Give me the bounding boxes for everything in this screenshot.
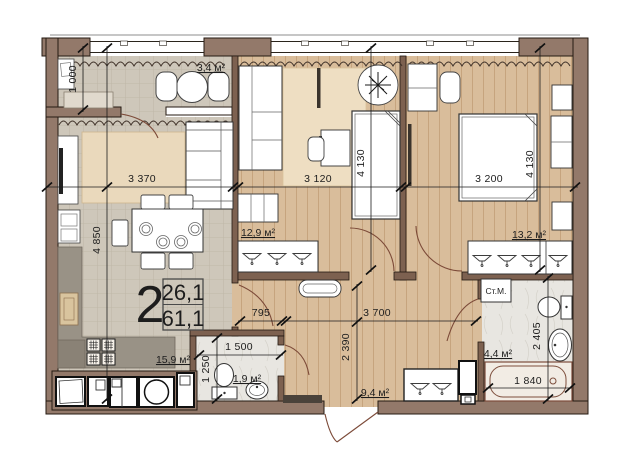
bedroom1-area-label: 12,9 м²: [241, 227, 276, 239]
dim-living-depth: 4 850: [91, 226, 103, 254]
pier-top-center: [204, 38, 271, 56]
wall-right: [573, 38, 588, 414]
bath-toilet-bowl: [538, 297, 560, 317]
hall-small-unit: [461, 395, 475, 404]
dim-wc-width: 1 500: [225, 341, 253, 353]
balcony-chair-right: [208, 72, 229, 101]
bathroom-area-label: 4,4 м²: [484, 348, 513, 360]
rooms-count: 2: [136, 276, 165, 334]
hallway-area-label: 9,4 м²: [361, 387, 390, 399]
kitchen-living-area-label: 15,9 м²: [156, 354, 191, 366]
dim-wc-depth: 1 250: [200, 355, 212, 383]
entrance-door-arc: [325, 414, 337, 442]
desk: [321, 130, 350, 166]
apartment-info-box: 2 26,1 61,1: [136, 276, 205, 334]
floor-mirror-bedroom1: [317, 68, 321, 108]
dim-bedroom1-depth: 4 130: [355, 149, 367, 177]
living-area-value: 26,1: [162, 280, 205, 305]
apartment-floor-plan: 3 370 3 120 3 200 4 850 1 000 4 130 4 13…: [0, 0, 632, 474]
dim-bedroom1-width: 3 120: [304, 173, 332, 185]
dim-hall-stub: 795: [252, 307, 270, 319]
wall-door-stub: [394, 272, 416, 280]
wall-mirror-bedroom2: [408, 124, 412, 186]
total-area-value: 61,1: [162, 306, 205, 331]
entrance-threshold: [324, 401, 378, 407]
hall-bench: [299, 280, 341, 297]
balcony-round-table: [177, 72, 208, 103]
wc-sink-faucet: [256, 386, 258, 388]
bedroom1-hanger-wardrobe: [238, 241, 318, 272]
bedroom1-wardrobe: [239, 66, 282, 170]
entrance-door-leaf: [337, 412, 378, 442]
bedroom2-nightstand-bottom: [552, 202, 572, 230]
balcony-chair-left: [156, 72, 177, 101]
balcony-window: [166, 107, 232, 115]
desk-chair: [308, 137, 324, 161]
bedroom2-cabinet: [408, 64, 437, 111]
wc-toilet-button: [223, 392, 225, 394]
wall-left: [46, 38, 58, 414]
bedroom1-dresser: [238, 194, 278, 222]
wall-bottom-right: [378, 401, 588, 414]
wall-hall-bedroom1: [238, 272, 349, 280]
dim-balcony-depth: 1 000: [67, 65, 79, 93]
bedroom2-area-label: 13,2 м²: [512, 229, 547, 241]
living-carpet: [82, 132, 185, 203]
hall-cabinet: [459, 361, 476, 394]
floor-plan-canvas: 3 370 3 120 3 200 4 850 1 000 4 130 4 13…: [0, 0, 632, 474]
bath-toilet-button: [565, 306, 567, 308]
wall-bedroom1-bedroom2: [400, 56, 406, 280]
bedroom2-pouf: [440, 72, 460, 103]
sink-cabinet: [110, 377, 137, 407]
balcony-bench: [64, 92, 113, 108]
dim-bedroom2-width: 3 200: [475, 173, 503, 185]
bath-sink-faucet: [554, 344, 557, 347]
washing-machine-label: Ст.М.: [486, 286, 507, 296]
dim-bedroom2-depth: 4 130: [524, 150, 536, 178]
bedroom2-nightstand-top: [552, 85, 572, 110]
doormat: [283, 395, 322, 403]
dim-bath-width: 1 840: [514, 375, 542, 387]
dim-hall-depth: 2 390: [340, 333, 352, 361]
kitchen-appliance-row: [52, 371, 197, 410]
bedroom2-hanger-wardrobe: [468, 241, 572, 274]
dim-living-width: 3 370: [128, 173, 156, 185]
kitchen-counter-corner: [58, 340, 85, 368]
balcony-area-label: 3,4 м²: [197, 62, 226, 74]
dim-bath-depth: 2 405: [531, 322, 543, 350]
wall-wc-right-upper: [278, 336, 284, 345]
dim-hall-width: 3 700: [363, 307, 391, 319]
wc-area-label: 1,9 м²: [233, 373, 262, 385]
appliance-counter-top: [59, 380, 83, 404]
fridge-freezer: [96, 380, 105, 390]
tall-unit-detail: [180, 376, 190, 385]
